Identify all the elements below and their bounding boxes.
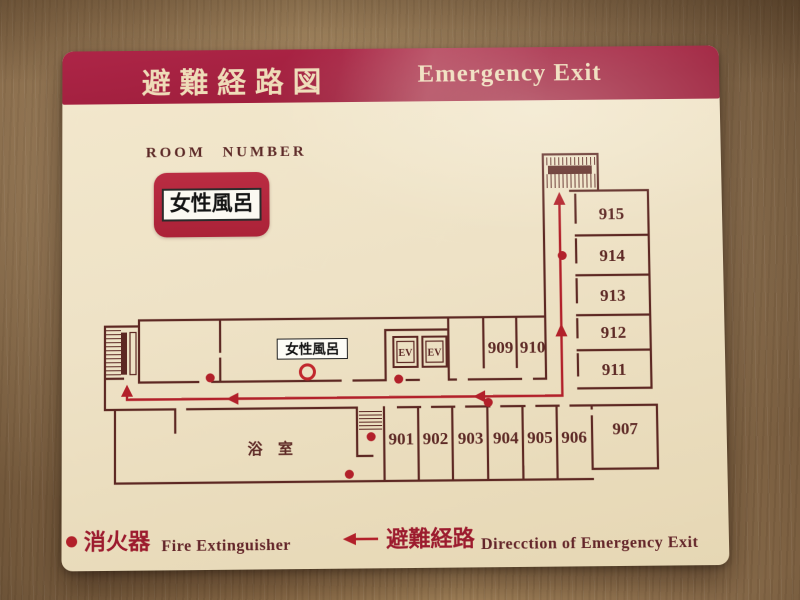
room-label-914: 914 (599, 246, 625, 265)
room-label-905: 905 (527, 428, 553, 448)
floor-plan: EV EV (61, 99, 729, 572)
sign-title-english: Emergency Exit (417, 59, 601, 88)
legend-fire-en: Fire Extinguisher (161, 537, 291, 556)
sign-body: ROOM NUMBER 女性風呂 (61, 99, 729, 572)
fire-extinguisher-dot (206, 373, 215, 382)
evacuation-route-line (127, 202, 562, 400)
fire-extinguisher-dot (345, 470, 354, 479)
legend-route-arrow-icon (343, 533, 378, 546)
room-label-903: 903 (458, 429, 484, 449)
evacuation-route (121, 192, 569, 406)
route-arrowhead-up-mid (555, 323, 567, 336)
women-bath-floor-label: 女性風呂 (277, 338, 347, 359)
stairwell-bottom (359, 411, 382, 429)
route-arrowhead-left-2 (226, 393, 238, 405)
evacuation-sign: 避難経路図 Emergency Exit ROOM NUMBER 女性風呂 (61, 45, 729, 571)
women-bath-floor-label-text: 女性風呂 (285, 340, 339, 358)
fire-extinguisher-dot (367, 432, 376, 441)
elevator-label-1: EV (398, 348, 413, 359)
room-label-911: 911 (602, 360, 627, 379)
room-label-909: 909 (488, 338, 514, 357)
fire-extinguisher-dot (558, 251, 567, 260)
current-location-circle (300, 365, 314, 379)
elevator-bank: EV EV (393, 336, 446, 367)
bath-room-label: 浴 室 (248, 439, 299, 458)
room-label-912: 912 (601, 323, 627, 342)
room-label-910: 910 (520, 337, 546, 356)
elevator-label-2: EV (428, 348, 443, 359)
route-arrowhead-up-top (553, 192, 565, 205)
room-label-907: 907 (612, 419, 638, 438)
legend-route-jp: 避難経路 (386, 526, 476, 553)
sign-title-japanese: 避難経路図 (142, 59, 331, 102)
legend-route-en: Direcction of Emergency Exit (481, 534, 699, 553)
stairwell-left (106, 330, 136, 374)
legend-fire-jp: 消火器 (84, 530, 152, 556)
legend: 消火器 Fire Extinguisher 避難経路 Direcction of… (66, 523, 699, 557)
room-label-915: 915 (599, 204, 625, 223)
room-labels: 915 914 913 912 911 909 910 901 902 903 … (246, 204, 639, 458)
sign-title-bar: 避難経路図 Emergency Exit (62, 45, 719, 104)
stairwell-top (547, 157, 595, 188)
room-label-904: 904 (493, 428, 519, 448)
fire-extinguisher-dot (394, 375, 403, 384)
room-label-913: 913 (600, 286, 626, 305)
legend-fire-extinguisher-dot (66, 536, 77, 547)
room-label-901: 901 (388, 429, 414, 449)
route-arrowhead-up-left (121, 385, 133, 397)
route-arrowhead-left-1 (473, 390, 485, 402)
room-label-902: 902 (423, 429, 449, 449)
room-label-906: 906 (561, 428, 587, 447)
